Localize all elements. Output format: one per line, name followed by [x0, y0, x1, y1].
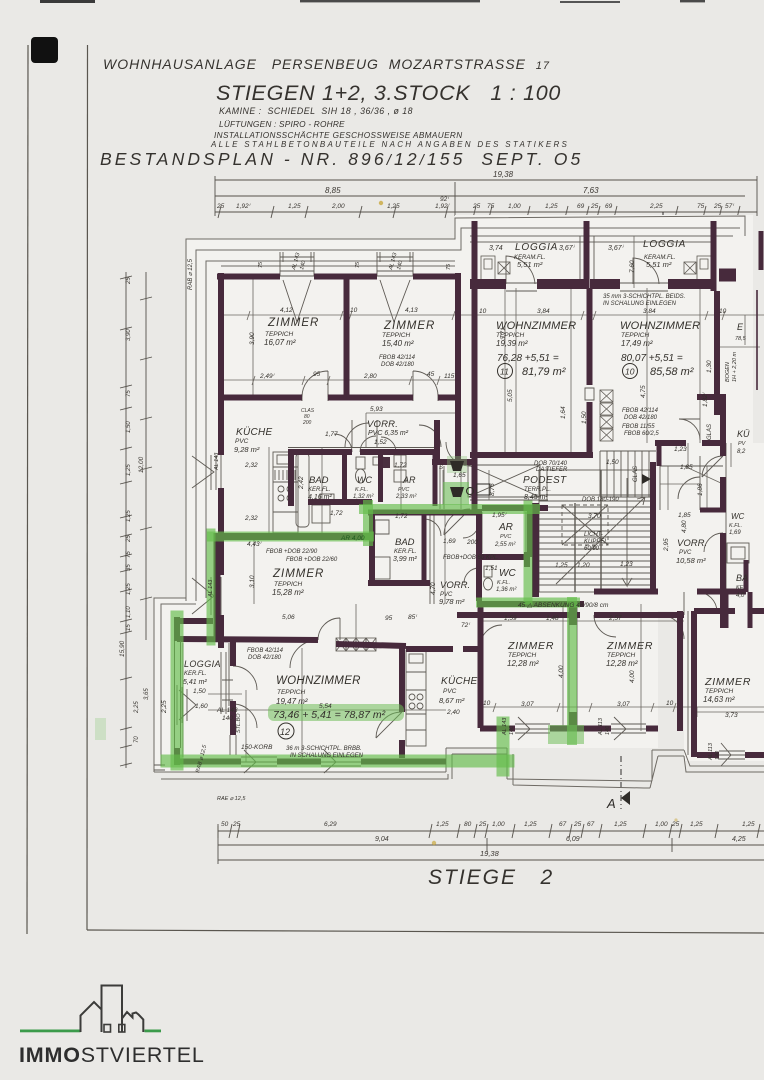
svg-text:1,25: 1,25 — [555, 562, 568, 569]
svg-text:9,28 m²: 9,28 m² — [234, 445, 260, 454]
svg-text:TEPPICH: TEPPICH — [277, 689, 305, 696]
svg-text:15,28 m²: 15,28 m² — [272, 588, 304, 597]
svg-text:AL 113: AL 113 — [598, 717, 604, 736]
svg-text:FBOB +DOB 22/90: FBOB +DOB 22/90 — [266, 549, 318, 555]
svg-text:1,95ⁱ: 1,95ⁱ — [492, 512, 507, 519]
svg-text:73,46 + 5,41 = 78,87 m²: 73,46 + 5,41 = 78,87 m² — [273, 709, 386, 721]
svg-text:75: 75 — [697, 203, 705, 210]
svg-text:WC: WC — [499, 568, 516, 579]
svg-text:5,05: 5,05 — [507, 389, 514, 402]
svg-text:150-KORB: 150-KORB — [241, 744, 273, 751]
svg-text:1,00: 1,00 — [492, 821, 505, 828]
svg-text:ALLE STAHLBETONBAUTEILE NACH A: ALLE STAHLBETONBAUTEILE NACH ANGABEN DES… — [210, 140, 569, 149]
svg-text:K.FL.: K.FL. — [355, 487, 368, 493]
svg-text:KE: KE — [736, 585, 744, 591]
svg-text:1,20: 1,20 — [577, 562, 590, 569]
svg-text:FBOB 60/2,5: FBOB 60/2,5 — [624, 431, 659, 437]
svg-text:DOB 42/180: DOB 42/180 — [248, 655, 282, 661]
svg-text:140: 140 — [605, 725, 611, 735]
svg-text:3,74: 3,74 — [489, 245, 503, 252]
svg-text:1,85: 1,85 — [678, 512, 691, 519]
svg-text:PODEST: PODEST — [523, 475, 567, 486]
svg-text:1,85: 1,85 — [680, 464, 693, 471]
svg-text:A: A — [606, 796, 616, 811]
svg-text:3,07: 3,07 — [521, 701, 534, 708]
svg-text:IN SCHALUNG EINLEGEN: IN SCHALUNG EINLEGEN — [603, 301, 677, 307]
svg-text:KÜCHE: KÜCHE — [236, 426, 273, 438]
svg-text:5,51 m²: 5,51 m² — [646, 260, 672, 269]
svg-text:4,13: 4,13 — [405, 307, 418, 314]
svg-text:1,72: 1,72 — [395, 513, 408, 520]
svg-text:2,25: 2,25 — [161, 700, 168, 714]
svg-text:DA:TIEFER: DA:TIEFER — [536, 467, 568, 473]
svg-text:VORR.: VORR. — [440, 580, 470, 591]
svg-text:1,82ⁱ: 1,82ⁱ — [702, 392, 709, 407]
svg-text:1,65: 1,65 — [453, 472, 466, 479]
svg-text:4,12: 4,12 — [280, 307, 293, 314]
svg-text:WC: WC — [357, 475, 372, 485]
svg-text:67: 67 — [587, 821, 595, 828]
svg-text:1,92ⁱ: 1,92ⁱ — [236, 203, 251, 210]
svg-text:115ⁱ: 115ⁱ — [444, 373, 456, 380]
svg-text:78,5: 78,5 — [735, 336, 747, 342]
svg-text:STL.BO: STL.BO — [236, 713, 242, 733]
svg-text:140: 140 — [509, 725, 515, 735]
svg-text:KER.FL.: KER.FL. — [308, 487, 331, 493]
svg-text:TEPPICH: TEPPICH — [382, 332, 410, 339]
svg-text:8,85: 8,85 — [325, 186, 341, 195]
svg-text:PVC: PVC — [235, 438, 249, 445]
svg-text:2,42: 2,42 — [298, 476, 305, 490]
svg-text:3,71: 3,71 — [500, 327, 507, 340]
svg-text:TEPPICH: TEPPICH — [265, 331, 293, 338]
svg-text:1,25: 1,25 — [436, 821, 449, 828]
svg-text:STIEGE 2: STIEGE 2 — [428, 866, 554, 889]
svg-text:19,47 m²: 19,47 m² — [276, 697, 308, 706]
svg-text:95: 95 — [313, 371, 321, 378]
svg-text:AR 4,00: AR 4,00 — [340, 535, 365, 542]
svg-text:WOHNZIMMER: WOHNZIMMER — [496, 320, 576, 332]
svg-text:IN SCHALUNG EINLEGEN: IN SCHALUNG EINLEGEN — [290, 753, 364, 759]
svg-text:72ⁱ: 72ⁱ — [461, 622, 470, 629]
svg-text:25: 25 — [713, 203, 722, 210]
svg-text:2,49ⁱ: 2,49ⁱ — [259, 373, 275, 380]
svg-text:K.FL.: K.FL. — [729, 523, 742, 529]
svg-text:WOHNZIMMER: WOHNZIMMER — [276, 675, 361, 687]
svg-text:2,32: 2,32 — [244, 515, 258, 522]
svg-text:2,95: 2,95 — [663, 538, 670, 552]
svg-text:1H + 2,20 m: 1H + 2,20 m — [732, 351, 738, 382]
svg-text:7,63: 7,63 — [583, 186, 599, 195]
svg-text:1,25: 1,25 — [126, 510, 132, 522]
svg-text:FBOB 11/55: FBOB 11/55 — [622, 424, 655, 430]
svg-text:FBOB+DOB 60 KPL.: FBOB+DOB 60 KPL. — [443, 555, 499, 561]
svg-text:KÜ: KÜ — [737, 429, 750, 439]
svg-text:9,04: 9,04 — [375, 836, 389, 843]
svg-text:25: 25 — [590, 203, 599, 210]
svg-text:1,50: 1,50 — [126, 421, 132, 433]
svg-text:LOGGIA: LOGGIA — [643, 239, 686, 250]
svg-text:PVC 6,35 m²: PVC 6,35 m² — [368, 430, 409, 437]
svg-text:3,67ⁱ: 3,67ⁱ — [559, 244, 576, 252]
svg-text:69: 69 — [605, 203, 613, 210]
svg-text:GLAS: GLAS — [707, 424, 713, 440]
svg-text:1,25: 1,25 — [614, 821, 627, 828]
svg-text:TEPPICH: TEPPICH — [705, 688, 733, 695]
svg-text:1,77: 1,77 — [325, 431, 338, 438]
svg-text:8,45 m²: 8,45 m² — [524, 494, 548, 501]
svg-text:25: 25 — [478, 821, 487, 828]
svg-text:TEPPICH: TEPPICH — [508, 652, 536, 659]
svg-text:85ⁱ: 85ⁱ — [408, 614, 417, 621]
svg-text:25: 25 — [126, 535, 132, 543]
svg-text:PVC: PVC — [398, 487, 409, 493]
svg-text:LOGGIA: LOGGIA — [515, 242, 558, 253]
svg-text:140: 140 — [715, 750, 721, 760]
svg-text:1,50: 1,50 — [606, 459, 619, 466]
svg-text:3,73: 3,73 — [725, 712, 738, 719]
svg-text:DOB 42/180: DOB 42/180 — [381, 362, 415, 368]
svg-text:2,25: 2,25 — [134, 701, 140, 714]
svg-text:11: 11 — [500, 367, 509, 377]
svg-text:GLAS: GLAS — [633, 466, 639, 482]
svg-text:PVC: PVC — [500, 534, 511, 540]
svg-text:FBOB 42/114: FBOB 42/114 — [379, 355, 416, 361]
svg-text:10: 10 — [625, 367, 635, 377]
svg-text:75: 75 — [126, 390, 132, 397]
svg-text:1,23: 1,23 — [620, 561, 633, 568]
svg-text:1,25: 1,25 — [126, 464, 132, 476]
svg-text:DOB 42/180: DOB 42/180 — [624, 415, 658, 421]
svg-text:3,67ⁱ: 3,67ⁱ — [608, 244, 625, 252]
svg-text:45: 45 — [427, 371, 435, 378]
svg-text:1,50: 1,50 — [193, 688, 206, 695]
svg-text:ZIMMER: ZIMMER — [383, 320, 435, 332]
svg-text:19,38: 19,38 — [480, 849, 500, 858]
svg-text:LICHT-: LICHT- — [584, 532, 603, 538]
svg-text:BOGEN: BOGEN — [725, 362, 731, 382]
svg-text:1,69: 1,69 — [729, 530, 741, 536]
svg-text:4,25: 4,25 — [732, 836, 746, 843]
svg-text:16,07 m²: 16,07 m² — [264, 338, 296, 347]
svg-text:4,70: 4,70 — [430, 582, 437, 595]
svg-text:1,72: 1,72 — [330, 510, 343, 517]
svg-text:1,32 m²: 1,32 m² — [353, 494, 374, 500]
svg-text:75: 75 — [355, 261, 361, 268]
svg-text:35: 35 — [126, 564, 132, 571]
svg-text:INSTALLATIONSSCHÄCHTE GESCHOSS: INSTALLATIONSSCHÄCHTE GESCHOSSWEISE ABMA… — [214, 130, 463, 140]
svg-text:10: 10 — [350, 307, 358, 314]
svg-text:10: 10 — [479, 308, 487, 315]
svg-text:RAE ⌀ 12,5: RAE ⌀ 12,5 — [217, 796, 246, 802]
svg-text:8,2: 8,2 — [737, 449, 746, 455]
svg-text:10: 10 — [719, 308, 727, 315]
svg-text:1,92ⁱ: 1,92ⁱ — [435, 203, 450, 210]
svg-text:92ⁱ: 92ⁱ — [440, 196, 449, 203]
svg-text:25: 25 — [216, 203, 225, 210]
svg-text:3,07: 3,07 — [617, 701, 630, 708]
svg-text:1,23: 1,23 — [674, 446, 687, 453]
svg-text:14,63 m²: 14,63 m² — [703, 695, 735, 704]
svg-text:K.FL.: K.FL. — [497, 580, 510, 586]
svg-text:BESTANDSPLAN - NR. 896/12/155: BESTANDSPLAN - NR. 896/12/155 SEPT. O5 — [100, 149, 583, 169]
svg-text:50: 50 — [221, 821, 229, 828]
svg-text:TEPPICH: TEPPICH — [274, 581, 302, 588]
svg-text:FBOB 42/114: FBOB 42/114 — [622, 408, 659, 414]
svg-text:2,32: 2,32 — [244, 462, 258, 469]
svg-text:1,48: 1,48 — [546, 615, 559, 622]
svg-text:1,30: 1,30 — [706, 360, 713, 373]
svg-text:200: 200 — [302, 420, 312, 426]
svg-text:IMMOSTVIERTEL: IMMOSTVIERTEL — [19, 1043, 205, 1067]
svg-text:KER.FL.: KER.FL. — [184, 671, 207, 677]
svg-text:25: 25 — [232, 821, 241, 828]
svg-text:5,41 m²: 5,41 m² — [183, 679, 207, 686]
svg-text:1,25: 1,25 — [690, 821, 703, 828]
svg-text:25: 25 — [472, 203, 481, 210]
svg-text:WOHNHAUSANLAGE PERSENBEUG M: WOHNHAUSANLAGE PERSENBEUG MOZARTSTRASSE … — [103, 56, 550, 72]
svg-text:6,29: 6,29 — [324, 821, 337, 828]
svg-text:2,33 m²: 2,33 m² — [395, 494, 417, 500]
svg-text:200: 200 — [466, 539, 478, 546]
svg-text:25: 25 — [126, 277, 132, 285]
svg-text:95: 95 — [385, 615, 393, 622]
svg-text:ZIMMER: ZIMMER — [272, 568, 324, 580]
svg-text:WC: WC — [731, 512, 745, 521]
svg-text:KER.FL.: KER.FL. — [394, 549, 417, 555]
svg-text:AR: AR — [498, 522, 513, 533]
svg-text:1,25: 1,25 — [387, 203, 400, 210]
svg-text:15,40 m²: 15,40 m² — [382, 339, 414, 348]
svg-text:15: 15 — [126, 624, 132, 631]
svg-text:ZIMMER: ZIMMER — [606, 640, 653, 652]
svg-text:3,84: 3,84 — [643, 308, 656, 315]
svg-text:2,40: 2,40 — [446, 709, 460, 716]
svg-text:76,28 +5,51 =: 76,28 +5,51 = — [497, 353, 559, 364]
svg-text:AL 143: AL 143 — [216, 707, 238, 714]
svg-text:AR: AR — [402, 475, 416, 485]
svg-text:1,86: 1,86 — [697, 483, 704, 496]
svg-text:ZIMMER: ZIMMER — [704, 676, 751, 688]
svg-text:1,25: 1,25 — [126, 583, 132, 595]
svg-text:69: 69 — [577, 203, 585, 210]
svg-text:KAMINE : SCHIEDEL SIH 18 , 3: KAMINE : SCHIEDEL SIH 18 , 36/36 , ø 18 — [219, 106, 413, 116]
svg-text:3,99 m²: 3,99 m² — [393, 556, 417, 563]
svg-text:ZIMMER: ZIMMER — [507, 640, 554, 652]
svg-text:S: S — [439, 465, 443, 471]
svg-text:5,51 m²: 5,51 m² — [517, 260, 543, 269]
svg-text:1,59: 1,59 — [504, 615, 517, 622]
svg-text:4,80: 4,80 — [681, 520, 688, 533]
svg-text:BA: BA — [736, 573, 748, 583]
svg-text:LOGGIA: LOGGIA — [184, 659, 221, 669]
svg-text:2,80: 2,80 — [363, 373, 377, 380]
svg-text:AL 113: AL 113 — [708, 742, 714, 761]
svg-text:36 m 3-SCHICHTPL. BRBB.: 36 m 3-SCHICHTPL. BRBB. — [286, 746, 362, 752]
svg-text:LÜFTUNGEN : SPIRO - ROHRE: LÜFTUNGEN : SPIRO - ROHRE — [219, 119, 345, 129]
svg-text:1,25: 1,25 — [742, 821, 755, 828]
svg-text:PVC: PVC — [443, 688, 457, 695]
svg-text:75: 75 — [126, 551, 132, 558]
svg-text:12: 12 — [280, 727, 290, 737]
svg-text:12,28 m²: 12,28 m² — [507, 659, 539, 668]
svg-text:1,25: 1,25 — [524, 821, 537, 828]
svg-text:4,00: 4,00 — [558, 665, 565, 678]
svg-text:BAD: BAD — [309, 475, 329, 486]
svg-text:WOHNZIMMER: WOHNZIMMER — [620, 320, 700, 332]
svg-text:7,60: 7,60 — [629, 260, 636, 273]
svg-text:6,09: 6,09 — [566, 836, 580, 843]
svg-text:1,36 m²: 1,36 m² — [496, 587, 517, 593]
svg-text:VORR.: VORR. — [677, 538, 707, 549]
svg-text:10: 10 — [483, 700, 491, 707]
svg-text:5,93: 5,93 — [370, 406, 383, 413]
svg-text:2,55 m²: 2,55 m² — [494, 542, 516, 548]
svg-text:1,50: 1,50 — [581, 411, 588, 424]
svg-text:4,75: 4,75 — [640, 385, 647, 398]
svg-text:80: 80 — [464, 821, 472, 828]
svg-text:60/90: 60/90 — [584, 546, 600, 552]
svg-text:85,58 m²: 85,58 m² — [650, 366, 694, 378]
svg-text:ZIMMER: ZIMMER — [267, 317, 319, 329]
svg-text:1,60: 1,60 — [195, 703, 208, 710]
svg-text:75: 75 — [258, 261, 264, 268]
svg-text:2,25: 2,25 — [649, 203, 663, 210]
svg-text:AL 143: AL 143 — [208, 579, 214, 598]
svg-text:80,07 +5,51 =: 80,07 +5,51 = — [621, 353, 683, 364]
svg-text:KUPPEL: KUPPEL — [584, 539, 608, 545]
svg-text:12,28 m²: 12,28 m² — [606, 659, 638, 668]
svg-text:3,90: 3,90 — [249, 332, 256, 345]
svg-text:FBOB +DOB 22/60: FBOB +DOB 22/60 — [286, 557, 338, 563]
svg-text:1,10: 1,10 — [126, 606, 132, 618]
svg-text:3,65: 3,65 — [144, 688, 150, 700]
svg-text:TEPPICH: TEPPICH — [607, 652, 635, 659]
svg-text:1,25: 1,25 — [545, 203, 558, 210]
svg-text:AL 143: AL 143 — [214, 452, 220, 471]
svg-text:25: 25 — [573, 821, 582, 828]
svg-text:5,06: 5,06 — [282, 614, 295, 621]
svg-text:TERR.PL.: TERR.PL. — [524, 487, 551, 493]
svg-text:45 △ ABSENKUNG 48/90/8 cm: 45 △ ABSENKUNG 48/90/8 cm — [518, 602, 609, 609]
svg-text:17,49 m²: 17,49 m² — [621, 339, 653, 348]
svg-text:10,58 m²: 10,58 m² — [676, 556, 706, 565]
svg-text:75: 75 — [487, 203, 495, 210]
svg-text:10: 10 — [666, 700, 674, 707]
svg-text:4,43ⁱ: 4,43ⁱ — [247, 541, 262, 548]
svg-text:81,79 m²: 81,79 m² — [522, 366, 566, 378]
svg-text:VORR.: VORR. — [367, 419, 398, 430]
svg-text:2,00: 2,00 — [331, 203, 345, 210]
svg-text:57ⁱ: 57ⁱ — [725, 203, 734, 210]
svg-text:5,54: 5,54 — [319, 703, 332, 710]
svg-text:AL 143: AL 143 — [502, 717, 508, 736]
svg-text:BAD: BAD — [395, 537, 415, 548]
svg-text:4,16 m²: 4,16 m² — [308, 494, 332, 501]
svg-text:1,52: 1,52 — [374, 439, 387, 446]
svg-text:STIEGEN 1+2, 3.STOCK 1 : 100: STIEGEN 1+2, 3.STOCK 1 : 100 — [216, 81, 561, 105]
svg-text:FBOB 42/114: FBOB 42/114 — [247, 648, 284, 654]
svg-text:3,84: 3,84 — [537, 308, 550, 315]
svg-text:70: 70 — [134, 736, 140, 743]
svg-text:2,57: 2,57 — [608, 615, 622, 622]
svg-text:DOB 180-190: DOB 180-190 — [582, 497, 619, 503]
svg-text:75: 75 — [446, 263, 452, 270]
svg-text:67: 67 — [559, 821, 567, 828]
svg-text:25: 25 — [671, 821, 680, 828]
svg-text:15,90: 15,90 — [119, 640, 126, 657]
svg-text:RAB ⌀ 12,5: RAB ⌀ 12,5 — [188, 258, 194, 290]
svg-text:12,00: 12,00 — [138, 456, 145, 473]
svg-text:1,69: 1,69 — [443, 538, 456, 545]
svg-text:1,25: 1,25 — [288, 203, 301, 210]
svg-text:KÜCHE: KÜCHE — [441, 675, 478, 687]
svg-text:8,67 m²: 8,67 m² — [439, 696, 465, 705]
svg-text:1,00: 1,00 — [655, 821, 668, 828]
svg-text:E: E — [737, 322, 744, 332]
svg-text:1,00: 1,00 — [508, 203, 521, 210]
svg-text:3,90: 3,90 — [126, 329, 132, 341]
svg-text:19,38: 19,38 — [493, 170, 514, 179]
svg-text:1,64: 1,64 — [560, 406, 567, 419]
svg-text:1,51: 1,51 — [485, 565, 498, 572]
svg-text:1,72: 1,72 — [394, 462, 407, 469]
svg-text:TEPPICH: TEPPICH — [621, 332, 649, 339]
svg-text:4,0: 4,0 — [736, 593, 745, 599]
svg-text:140: 140 — [222, 715, 233, 722]
svg-text:3,70: 3,70 — [588, 513, 601, 520]
svg-text:4,00: 4,00 — [629, 670, 636, 683]
svg-text:9,78 m²: 9,78 m² — [439, 597, 465, 606]
svg-text:35 mm 3-SCHICHTPL. BEIDS.: 35 mm 3-SCHICHTPL. BEIDS. — [603, 294, 685, 300]
svg-text:3,10: 3,10 — [249, 575, 256, 588]
